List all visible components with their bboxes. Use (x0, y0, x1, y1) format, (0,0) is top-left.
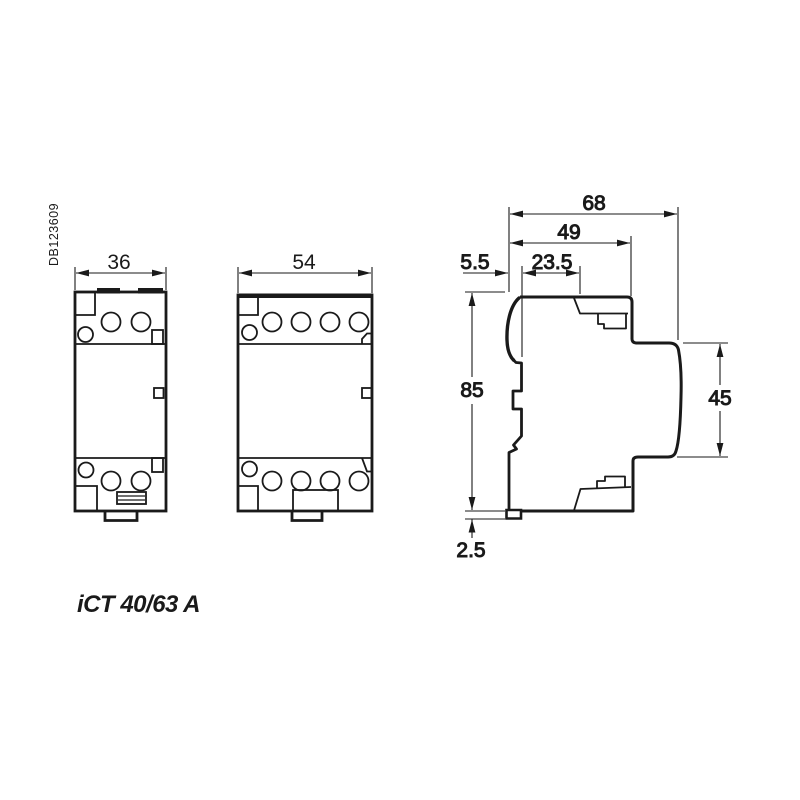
dim-label-23-5: 23.5 (532, 251, 573, 274)
corner-notch (239, 486, 258, 510)
terminal-circle (292, 313, 311, 332)
dim-label-36: 36 (107, 251, 130, 274)
bottom-tab (105, 512, 137, 521)
doc-code: DB123609 (47, 203, 61, 266)
terminal-circle (263, 313, 282, 332)
terminal-circle (321, 472, 340, 491)
terminal-circle-small (242, 462, 257, 477)
terminal-circle-small (79, 463, 94, 478)
center-block (293, 490, 338, 511)
terminal-circle (102, 472, 121, 491)
detail-wedge (362, 458, 372, 472)
dim-label-45: 45 (708, 387, 731, 410)
side-square (154, 388, 164, 398)
dim-label-54: 54 (292, 251, 316, 274)
terminal-circle (263, 472, 282, 491)
din-clip-spring (507, 298, 519, 360)
corner-notch (239, 297, 258, 315)
dimension-drawing-page: DB123609 36 (0, 0, 800, 800)
label-window (117, 492, 146, 504)
top-tab (138, 288, 163, 294)
clip-foot (507, 510, 522, 519)
terminal-circle (321, 313, 340, 332)
dim-label-2-5: 2.5 (456, 539, 485, 562)
body-outline (520, 297, 681, 511)
detail-rect (152, 458, 163, 472)
terminal-circle (132, 472, 151, 491)
corner-notch (76, 293, 95, 315)
front-view-4pole: 54 (237, 251, 373, 521)
detail-rect (152, 330, 163, 344)
din-rail-profile (509, 360, 522, 510)
dimension-drawing: DB123609 36 (0, 0, 800, 800)
front-view-2pole: 36 (75, 251, 166, 521)
terminal-circle (102, 313, 121, 332)
dim-foot-2-5 (465, 511, 505, 538)
dim-label-5-5: 5.5 (460, 251, 489, 274)
latch-detail-bottom (574, 487, 631, 511)
dim-label-68: 68 (582, 192, 605, 215)
terminal-circle-small (78, 327, 93, 342)
top-tab (97, 288, 120, 294)
latch-detail-top (574, 298, 628, 314)
detail-wedge (362, 334, 372, 345)
corner-notch (76, 486, 97, 510)
side-view: 68 49 5.5 23.5 85 (456, 192, 731, 562)
dim-label-85: 85 (460, 379, 483, 402)
product-label: iCT 40/63 A (77, 591, 200, 618)
dim-front-23-5 (522, 266, 580, 357)
terminal-circle (350, 313, 369, 332)
terminal-circle (292, 472, 311, 491)
terminal-circle-small (242, 325, 257, 340)
bottom-tab (292, 512, 322, 521)
terminal-circle (350, 472, 369, 491)
side-square (362, 388, 372, 398)
terminal-circle (132, 313, 151, 332)
latch-detail-top-step (598, 314, 626, 329)
dim-label-49: 49 (557, 221, 580, 244)
